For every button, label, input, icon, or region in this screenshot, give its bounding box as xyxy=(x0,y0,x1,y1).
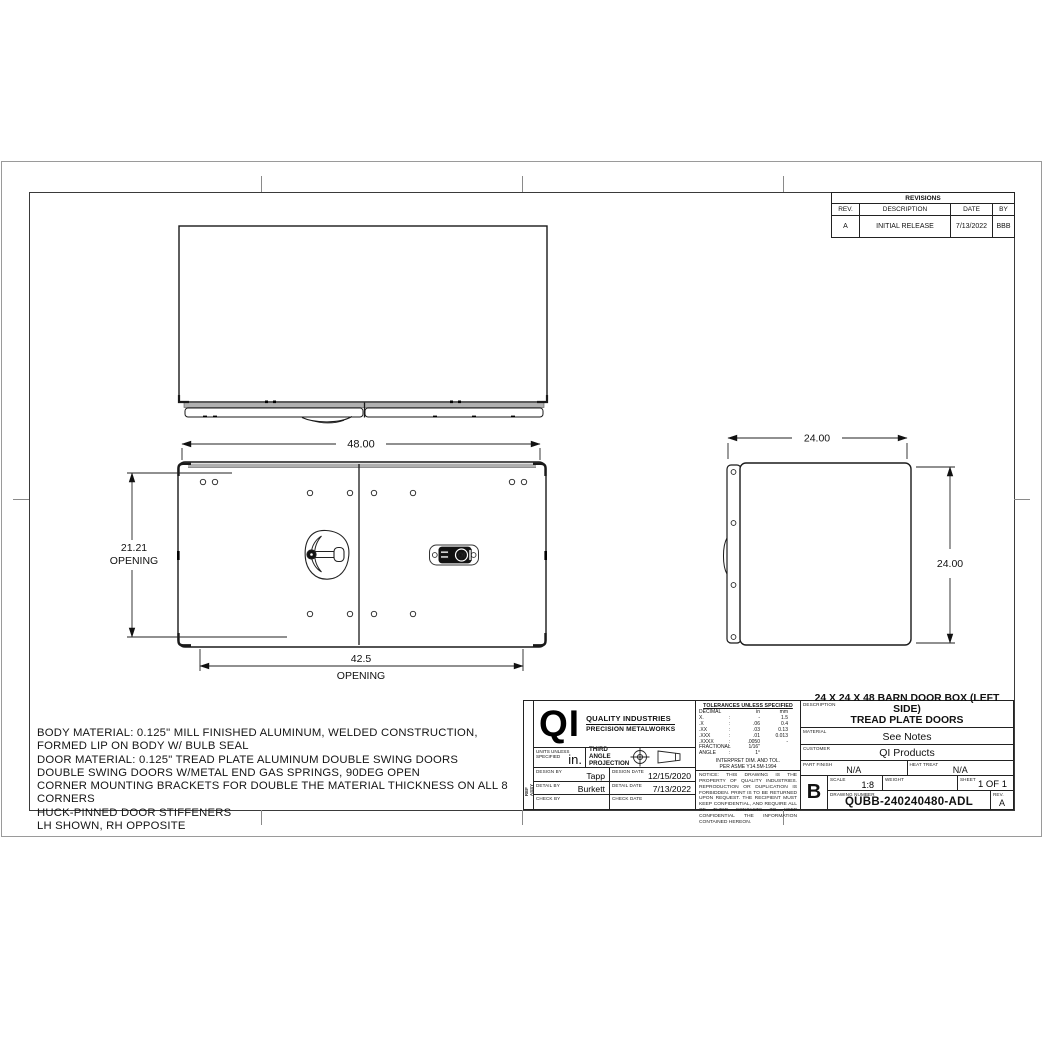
t-handle-pivot-dot xyxy=(310,553,313,556)
customer-value: QI Products xyxy=(879,747,934,760)
tolerances-table: DECIMAL in mm X.: - 1.5 .X: .06 0.4 .XX:… xyxy=(699,710,797,757)
front-view: QI xyxy=(177,462,547,647)
opening-width-word: OPENING xyxy=(337,670,385,682)
opening-height-word: OPENING xyxy=(110,555,158,567)
latch-slot-1 xyxy=(441,551,449,553)
material-label: MATERIAL xyxy=(803,729,826,734)
weight-label: WEIGHT xyxy=(885,777,904,782)
sheet-size-cell: B xyxy=(801,776,828,809)
opening-height-value: 21.21 xyxy=(121,542,147,554)
note-line: DOOR MATERIAL: 0.125" TREAD PLATE ALUMIN… xyxy=(37,754,517,767)
sheet-cell: SHEET 1 OF 1 xyxy=(958,776,1013,790)
front-width-label: 48.00 xyxy=(347,439,375,451)
note-line: LH SHOWN, RH OPPOSITE xyxy=(37,820,517,833)
check-by-label: CHECK BY xyxy=(536,796,560,801)
latch-screw-right xyxy=(471,553,476,558)
check-date-label: CHECK DATE xyxy=(612,796,642,801)
front-width-dimension: 48.00 xyxy=(182,439,540,460)
side-height-dimension: 24.00 xyxy=(916,467,963,643)
material-cell: MATERIAL See Notes xyxy=(801,728,1013,745)
front-view-body xyxy=(178,462,546,647)
projection-label: THIRD ANGLE PROJECTION xyxy=(589,747,627,767)
note-line: FORMED LIP ON BODY W/ BULB SEAL xyxy=(37,740,517,753)
t-handle-knob xyxy=(334,548,344,562)
scale-label: SCALE xyxy=(830,777,846,782)
side-view xyxy=(723,463,911,645)
latch-slot-2 xyxy=(441,556,449,558)
detail-by-cell: DETAIL BY Burkett xyxy=(534,782,610,795)
design-by-cell: DESIGN BY Tapp xyxy=(534,768,610,781)
title-block-ref-strip: REF ASSY xyxy=(524,701,534,809)
design-by-label: DESIGN BY xyxy=(536,769,562,774)
tolerances-block: TOLERANCES UNLESS SPECIFIED DECIMAL in m… xyxy=(696,701,800,757)
latch-logo-text: QI xyxy=(458,553,465,560)
latch-bolt-mark xyxy=(469,550,471,561)
rev-cell: REV. A xyxy=(991,791,1013,809)
drawing-views: QI 48.00 21.21 O xyxy=(0,0,1045,1045)
side-width-label: 24.00 xyxy=(804,433,830,445)
description-cell: DESCRIPTION 24 X 24 X 48 BARN DOOR BOX (… xyxy=(801,701,1013,728)
company-logo-row: QI QUALITY INDUSTRIES PRECISION METALWOR… xyxy=(534,701,695,748)
drawing-sheet: { "colors": {"line": "#1a1a1a", "shading… xyxy=(0,0,1045,1045)
door-latch: QI xyxy=(430,545,479,565)
company-tagline: PRECISION METALWORKS xyxy=(586,726,675,733)
description-line-2: TREAD PLATE DOORS xyxy=(851,715,964,726)
projection-cell: THIRD ANGLE PROJECTION xyxy=(586,748,695,767)
company-name: QUALITY INDUSTRIES xyxy=(586,714,675,725)
ref-assy-label: REF ASSY xyxy=(524,784,534,796)
opening-width-dimension: 42.5 OPENING xyxy=(200,649,523,682)
note-line: BODY MATERIAL: 0.125" MILL FINISHED ALUM… xyxy=(37,727,517,740)
part-finish-cell: PART FINISH N/A xyxy=(801,761,908,775)
top-view-body xyxy=(179,226,547,402)
check-by-cell: CHECK BY xyxy=(534,795,610,809)
drawing-number-cell: DRAWING NUMBER QUBB-240240480-ADL xyxy=(828,791,991,809)
detail-by-value: Burkett xyxy=(578,784,605,794)
title-block-bottom-row: B SCALE 1:8 WEIGHT SHEET 1 OF 1 xyxy=(801,776,1013,809)
check-date-cell: CHECK DATE xyxy=(610,795,695,809)
scale-weight-sheet-row: SCALE 1:8 WEIGHT SHEET 1 OF 1 xyxy=(828,776,1013,791)
drawing-number-row: DRAWING NUMBER QUBB-240240480-ADL REV. A xyxy=(828,791,1013,809)
title-block-logo-column: QI QUALITY INDUSTRIES PRECISION METALWOR… xyxy=(534,701,696,809)
note-line: HUCK-PINNED DOOR STIFFENERS xyxy=(37,807,517,820)
confidentiality-notice: NOTICE: THIS DRAWING IS THE PROPERTY OF … xyxy=(696,770,800,827)
rev-label: REV. xyxy=(993,792,1004,797)
general-notes: BODY MATERIAL: 0.125" MILL FINISHED ALUM… xyxy=(37,727,517,833)
units-value: in. xyxy=(568,752,582,767)
scale-value: 1:8 xyxy=(861,780,874,790)
sheet-label: SHEET xyxy=(960,777,976,782)
detail-by-label: DETAIL BY xyxy=(536,783,560,788)
detail-date-value: 7/13/2022 xyxy=(653,784,691,794)
detail-date-cell: DETAIL DATE 7/13/2022 xyxy=(610,782,695,795)
rev-value: A xyxy=(991,798,1013,808)
third-angle-projection-icon xyxy=(627,747,687,767)
side-view-door-edge xyxy=(727,465,741,643)
drawing-number-value: QUBB-240240480-ADL xyxy=(828,796,990,808)
weight-cell: WEIGHT xyxy=(883,776,958,790)
interpret-note: INTERPRET DIM. AND TOL. PER ASME Y14.5M-… xyxy=(696,757,800,770)
sheet-value: 1 OF 1 xyxy=(978,779,1007,790)
side-height-label: 24.00 xyxy=(937,558,963,570)
design-date-label: DESIGN DATE xyxy=(612,769,644,774)
latch-screw-left xyxy=(432,553,437,558)
part-finish-value: N/A xyxy=(801,765,907,775)
title-block: REF ASSY QI QUALITY INDUSTRIES PRECISION… xyxy=(523,700,1014,810)
front-view-top-lip xyxy=(188,464,536,468)
description-label: DESCRIPTION xyxy=(803,702,836,707)
top-view xyxy=(179,226,547,423)
note-line: CORNER MOUNTING BRACKETS FOR DOUBLE THE … xyxy=(37,780,517,807)
design-row: DESIGN BY Tapp DESIGN DATE 12/15/2020 xyxy=(534,768,695,782)
note-line: DOUBLE SWING DOORS W/METAL END GAS SPRIN… xyxy=(37,767,517,780)
customer-label: CUSTOMER xyxy=(803,746,830,751)
t-handle xyxy=(305,530,349,579)
check-row: CHECK BY CHECK DATE xyxy=(534,795,695,809)
side-view-body xyxy=(740,463,911,645)
units-cell: UNITS UNLESS SPECIFIED in. xyxy=(534,748,586,767)
customer-cell: CUSTOMER QI Products xyxy=(801,745,1013,762)
side-width-dimension: 24.00 xyxy=(728,433,907,459)
tolerances-column: TOLERANCES UNLESS SPECIFIED DECIMAL in m… xyxy=(696,701,801,809)
material-value: See Notes xyxy=(882,731,931,744)
detail-date-label: DETAIL DATE xyxy=(612,783,642,788)
finish-row: PART FINISH N/A HEAT TREAT N/A xyxy=(801,761,1013,776)
design-by-value: Tapp xyxy=(586,771,605,781)
tolerances-title: TOLERANCES UNLESS SPECIFIED xyxy=(699,703,797,709)
heat-treat-value: N/A xyxy=(908,765,1014,775)
detail-row: DETAIL BY Burkett DETAIL DATE 7/13/2022 xyxy=(534,782,695,796)
top-view-door-right xyxy=(365,408,543,417)
units-projection-row: UNITS UNLESS SPECIFIED in. THIRD ANGLE P… xyxy=(534,748,695,768)
design-date-value: 12/15/2020 xyxy=(648,771,691,781)
design-date-cell: DESIGN DATE 12/15/2020 xyxy=(610,768,695,781)
opening-width-value: 42.5 xyxy=(351,653,372,665)
heat-treat-cell: HEAT TREAT N/A xyxy=(908,761,1014,775)
top-view-door-left xyxy=(185,408,363,417)
qi-logo: QI xyxy=(539,704,580,744)
title-block-right-column: DESCRIPTION 24 X 24 X 48 BARN DOOR BOX (… xyxy=(801,701,1013,809)
scale-cell: SCALE 1:8 xyxy=(828,776,883,790)
